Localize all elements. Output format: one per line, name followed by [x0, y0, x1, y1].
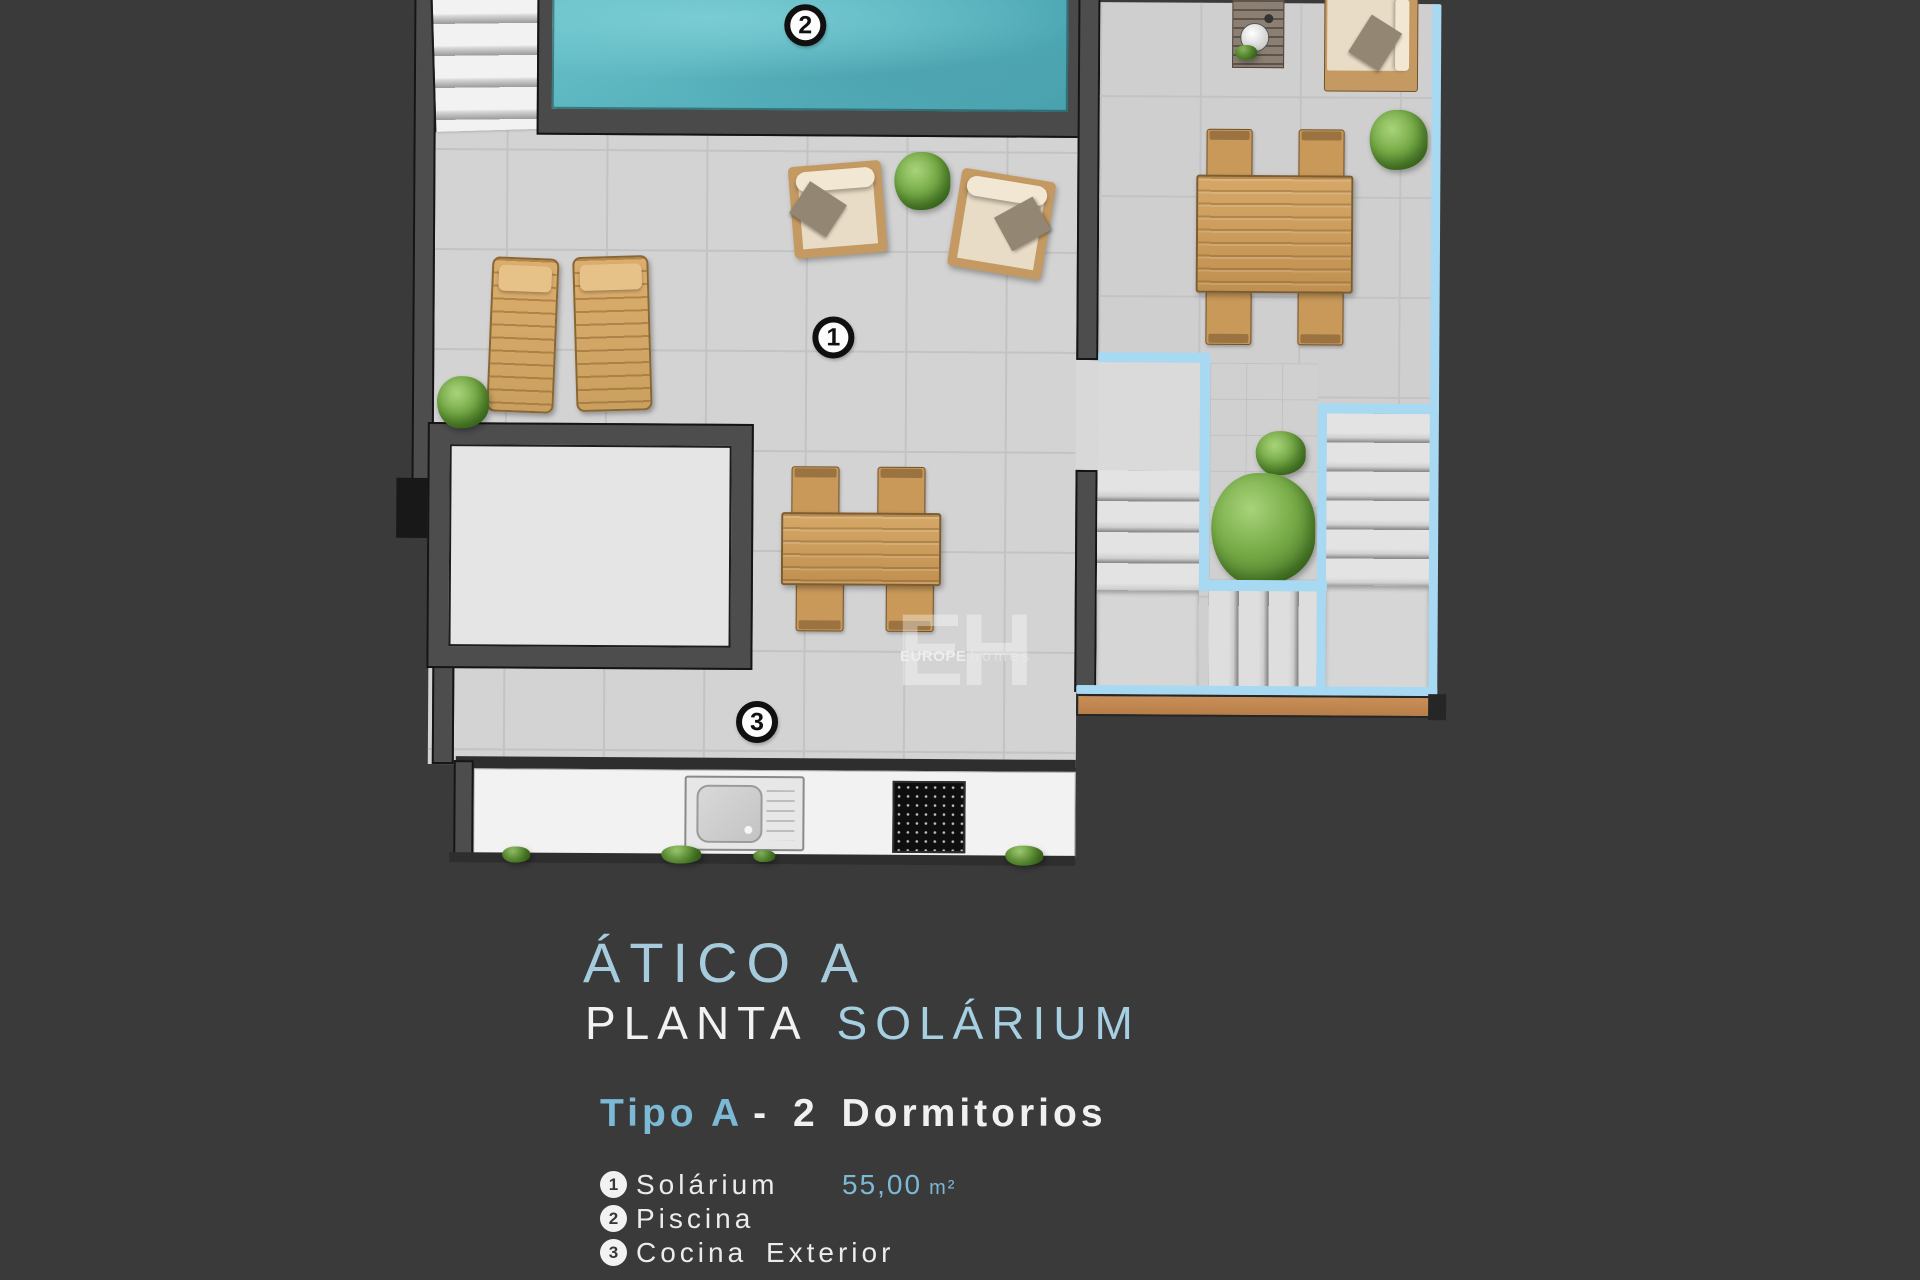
plan-legend: 1 Solárium 55,00m² 2 Piscina 3 Cocina Ex… — [600, 1170, 894, 1272]
potted-plant — [437, 376, 489, 428]
dining-chair — [1298, 129, 1344, 179]
plant-sprig — [1005, 846, 1043, 866]
courtyard-shrub-large — [1211, 473, 1316, 586]
kitchen-left-wall — [453, 760, 474, 856]
dining-chair — [886, 582, 934, 632]
sink-drain — [744, 826, 752, 834]
lower-level-outline — [1318, 403, 1439, 414]
legend-row-piscina: 2 Piscina — [600, 1204, 894, 1233]
lounge-armchair — [788, 160, 888, 259]
dining-chair — [1206, 129, 1252, 179]
kitchen-sink — [684, 776, 804, 852]
divider-wall-lower — [1074, 470, 1097, 692]
armchair-pillow — [994, 197, 1051, 251]
plant-sprig — [1235, 45, 1257, 60]
dining-chair — [791, 466, 839, 518]
legend-bullet-3: 3 — [600, 1239, 627, 1266]
stair-flight-main — [1326, 413, 1430, 586]
plant-sprig — [753, 850, 775, 862]
lounge-armchair — [947, 167, 1057, 280]
marker-piscina: 2 — [784, 4, 826, 46]
courtyard-shrub-small — [1256, 431, 1306, 475]
bbq-grill-hob — [892, 781, 965, 853]
armchair-pillow — [789, 181, 847, 237]
floor-subtitle-blue: SOLÁRIUM — [837, 997, 1141, 1049]
dining-table — [781, 512, 941, 586]
stairs-top-left — [430, 0, 546, 132]
sink-drainboard — [766, 790, 794, 840]
area-unit: m² — [929, 1177, 956, 1199]
unit-type-bedrooms: - 2 Dormitorios — [753, 1092, 1106, 1135]
divider-wall-upper — [1076, 0, 1100, 360]
grill-handle — [1264, 14, 1273, 23]
legend-bullet-1: 1 — [600, 1171, 627, 1198]
dining-chair — [877, 467, 925, 519]
sun-lounger — [486, 256, 559, 414]
marker-solarium: 1 — [812, 316, 854, 358]
marker-cocina: 3 — [736, 701, 778, 743]
lower-level-outline — [1098, 352, 1206, 363]
stair-landing — [1098, 362, 1201, 471]
terrace-wood-edge — [1076, 694, 1440, 718]
dining-table — [1196, 175, 1354, 294]
stair-slab — [1096, 590, 1199, 688]
legend-label: Solárium — [636, 1169, 778, 1201]
lower-level-outline — [1199, 580, 1327, 592]
sink-basin — [696, 785, 762, 843]
stair-slab — [1325, 585, 1429, 694]
area-number: 55,00 — [842, 1169, 922, 1200]
legend-row-cocina: 3 Cocina Exterior — [600, 1238, 894, 1267]
terrace-wood-edge-cap — [1428, 694, 1446, 720]
dining-chair — [1297, 291, 1343, 345]
stairwell-room-walls — [426, 422, 753, 670]
floor-subtitle-white: PLANTA — [585, 997, 809, 1049]
passage-floor — [1076, 358, 1101, 472]
potted-plant — [1369, 110, 1427, 170]
legend-area-value: 55,00m² — [842, 1169, 956, 1201]
legend-bullet-2: 2 — [600, 1205, 627, 1232]
lower-level-outline — [1199, 353, 1210, 591]
dining-chair — [796, 581, 844, 631]
plant-sprig — [502, 846, 530, 862]
stair-flight-down — [1097, 470, 1200, 591]
unit-type-heading: Tipo A- 2 Dormitorios — [600, 1092, 1107, 1136]
floor-subtitle: PLANTASOLÁRIUM — [585, 996, 1141, 1050]
unit-type-label: Tipo A — [600, 1092, 743, 1135]
sun-lounger — [572, 255, 652, 412]
potted-plant — [894, 152, 950, 210]
lower-level-outline — [1316, 403, 1327, 693]
stair-flight-turn — [1208, 591, 1317, 689]
legend-label: Cocina Exterior — [636, 1237, 894, 1269]
legend-row-solarium: 1 Solárium 55,00m² — [600, 1170, 894, 1199]
plant-sprig — [661, 845, 701, 863]
stairwell-room-floor — [448, 444, 731, 648]
page-title: ÁTICO A — [583, 930, 867, 995]
dining-chair — [1205, 291, 1251, 345]
floor-plan-page: 2 1 3 — [0, 0, 1920, 1280]
legend-label: Piscina — [636, 1203, 754, 1235]
floor-plan: 2 1 3 — [0, 0, 1920, 1280]
outdoor-sofa — [1324, 0, 1419, 92]
